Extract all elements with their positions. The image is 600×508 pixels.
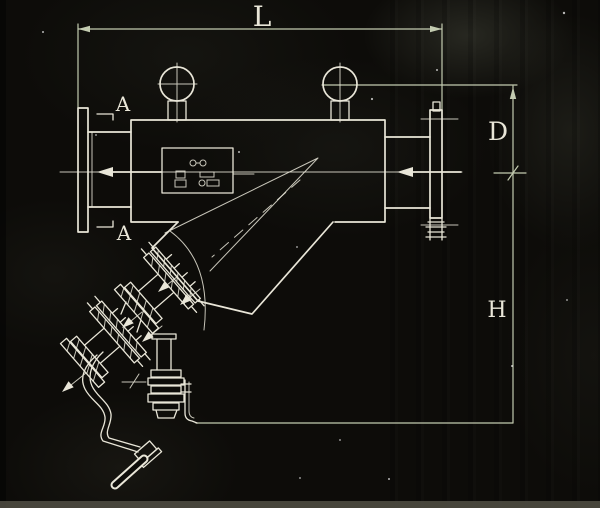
support-bracket <box>185 380 197 423</box>
main-body <box>131 120 385 222</box>
flow-arrow-left <box>97 167 162 177</box>
label-section-top: A <box>115 92 131 116</box>
label-diameter: D <box>488 117 508 146</box>
drawing-canvas: L D H A A <box>0 0 600 508</box>
nameplate <box>162 148 254 193</box>
section-mark-top: A <box>97 92 131 120</box>
y-strainer-cone <box>152 158 333 330</box>
dim-length: L <box>78 0 442 110</box>
inlet-flange-right <box>385 102 446 240</box>
y-strainer-technical-drawing: L D H A A <box>0 0 600 508</box>
flow-arrow-right <box>397 167 461 177</box>
threaded-stub <box>426 218 446 240</box>
label-section-bottom: A <box>116 221 132 245</box>
section-mark-bottom: A <box>97 221 132 245</box>
label-length: L <box>253 0 272 33</box>
dim-diameter: D <box>322 85 526 180</box>
pressure-gauge-right <box>323 63 357 122</box>
dust-specks <box>42 12 568 480</box>
dim-height: H <box>196 173 513 423</box>
label-height: H <box>487 298 506 323</box>
valve-cluster-upper <box>106 236 211 343</box>
nameplate-glyphs <box>175 160 219 187</box>
pressure-gauge-left <box>158 63 197 122</box>
scan-bottom-strip <box>0 501 600 508</box>
